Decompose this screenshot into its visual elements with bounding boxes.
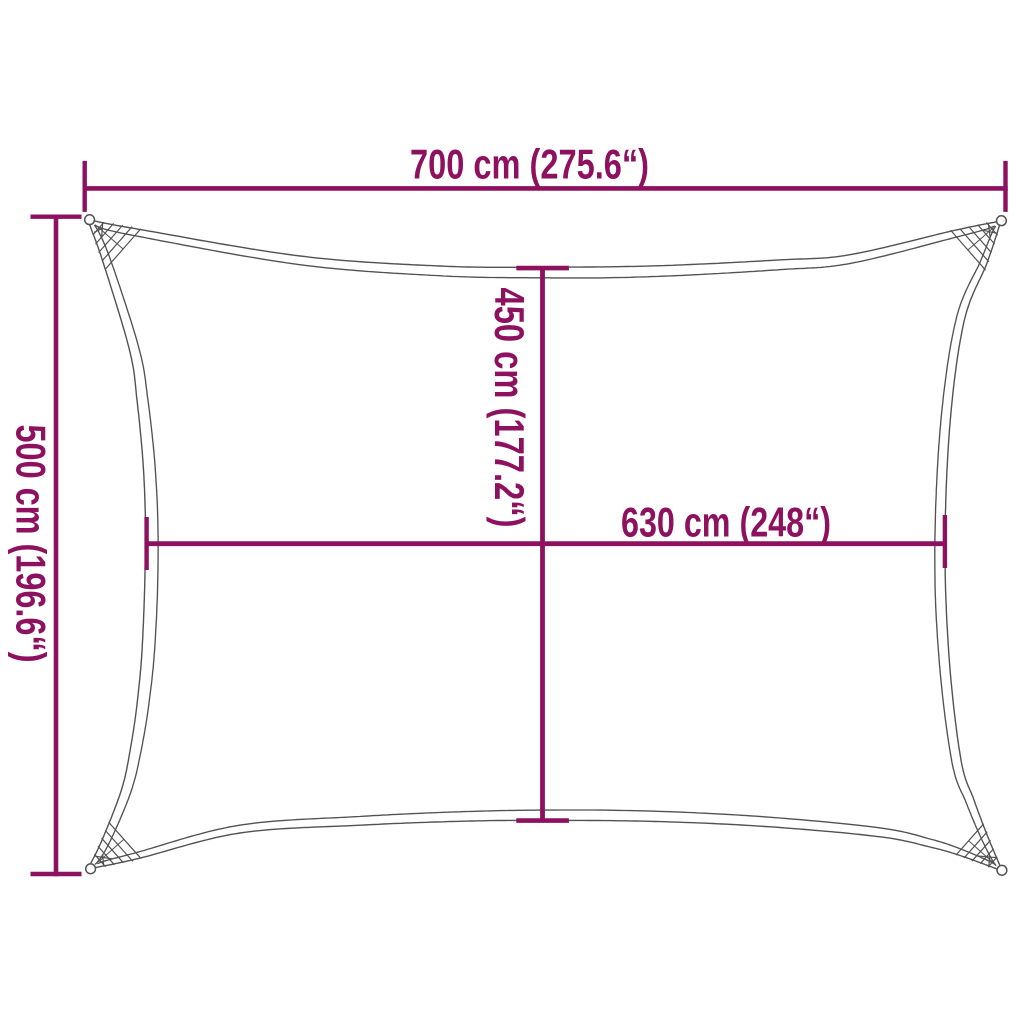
svg-text:700 cm (275.6“): 700 cm (275.6“) — [410, 141, 649, 188]
svg-text:630 cm (248“): 630 cm (248“) — [621, 499, 831, 546]
svg-text:500 cm (196.6“): 500 cm (196.6“) — [8, 425, 55, 663]
svg-text:450 cm (177.2“): 450 cm (177.2“) — [486, 288, 533, 528]
